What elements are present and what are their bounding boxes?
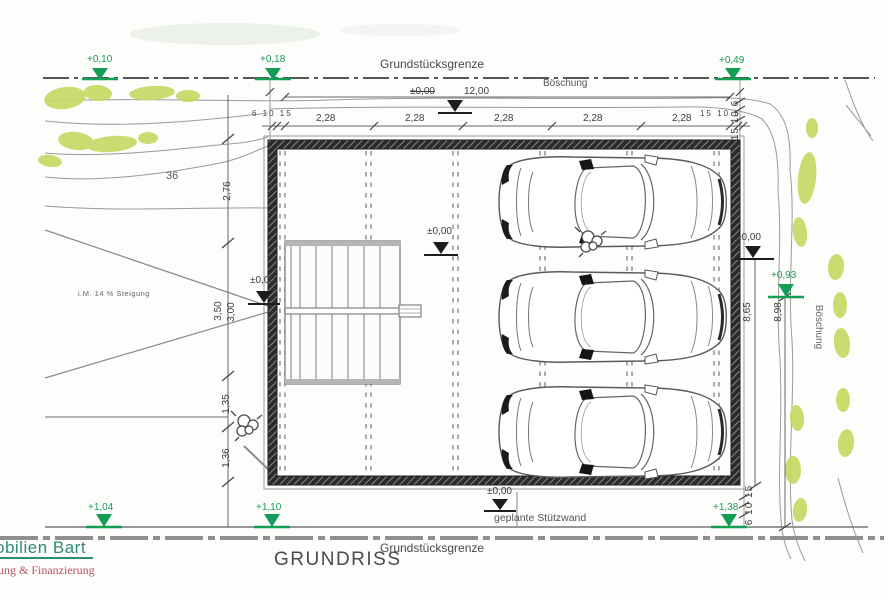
shrub-exterior (231, 411, 262, 441)
drawing-title: GRUNDRISS (274, 549, 402, 571)
elevation-label-plus104: +1,04 (88, 503, 113, 513)
boundary-label-top: Grundstücksgrenze (380, 58, 484, 70)
slope-label-top: Böschung (543, 79, 587, 89)
dim-left-350: 3,50 (214, 301, 224, 320)
bay-width-label-5: 2,28 (672, 114, 691, 124)
dim-left-136: 1,36 (222, 448, 232, 467)
car-3 (499, 385, 726, 479)
elevation-label-plus138: +1,38 (713, 503, 738, 513)
ramp-slope-note: i.M. 14 % Steigung (78, 290, 150, 298)
scan-artifacts (130, 23, 460, 45)
logo-underline (0, 557, 93, 559)
floor-plan-sheet: Grundstücksgrenze Böschung +0,10 +0,18 +… (0, 0, 888, 600)
zero-elevation-label-top: ±0,00 (410, 87, 435, 97)
car-1 (499, 155, 726, 249)
elevation-label-plus018: +0,18 (260, 55, 285, 65)
zero-elevation-label-bottom: ±0,00 (487, 487, 512, 497)
car-2 (499, 270, 726, 364)
ramp-lines (45, 230, 271, 472)
wall-layer-dims-right-bottom-vertical: 6 10 15 (745, 485, 755, 525)
elevation-label-plus010: +0,10 (87, 55, 112, 65)
elevation-label-plus110: +1,10 (256, 503, 281, 513)
dim-right-898: 8,98 (774, 302, 784, 321)
elevation-label-plus049: +0,49 (719, 56, 744, 66)
overall-width-label: 12,00 (464, 87, 489, 97)
dim-left-300: 3,00 (227, 302, 237, 321)
zero-elevation-label-entrance: ±0,00 (250, 276, 275, 286)
dim-left-135: 1,35 (222, 394, 232, 413)
elevation-label-plus093: +0,93 (771, 271, 796, 281)
bay-width-label-4: 2,28 (583, 114, 602, 124)
dim-left-276: 2,76 (223, 181, 233, 200)
retaining-wall-label: geplante Stützwand (494, 513, 586, 524)
bay-width-label-3: 2,28 (494, 114, 513, 124)
parked-cars (499, 155, 726, 479)
staircase (285, 241, 421, 384)
dim-right-865: 8,65 (743, 302, 753, 321)
logo-tagline: ung & Finanzierung (0, 563, 95, 578)
bay-width-label-1: 2,28 (316, 114, 335, 124)
bay-width-label-2: 2,28 (405, 114, 424, 124)
wall-layer-dims-right-top-vertical: 15 10 6 (731, 100, 741, 140)
logo-company-name: obilien Bart (0, 538, 86, 558)
parcel-number-label: 36 (166, 171, 178, 182)
zero-elevation-label-right: ±0,00 (736, 233, 761, 243)
slope-label-right: Böschung (813, 305, 823, 349)
wall-layer-dims-left: 6 10 15 (252, 110, 293, 118)
zero-elevation-label-interior: ±0,00 (427, 227, 452, 237)
